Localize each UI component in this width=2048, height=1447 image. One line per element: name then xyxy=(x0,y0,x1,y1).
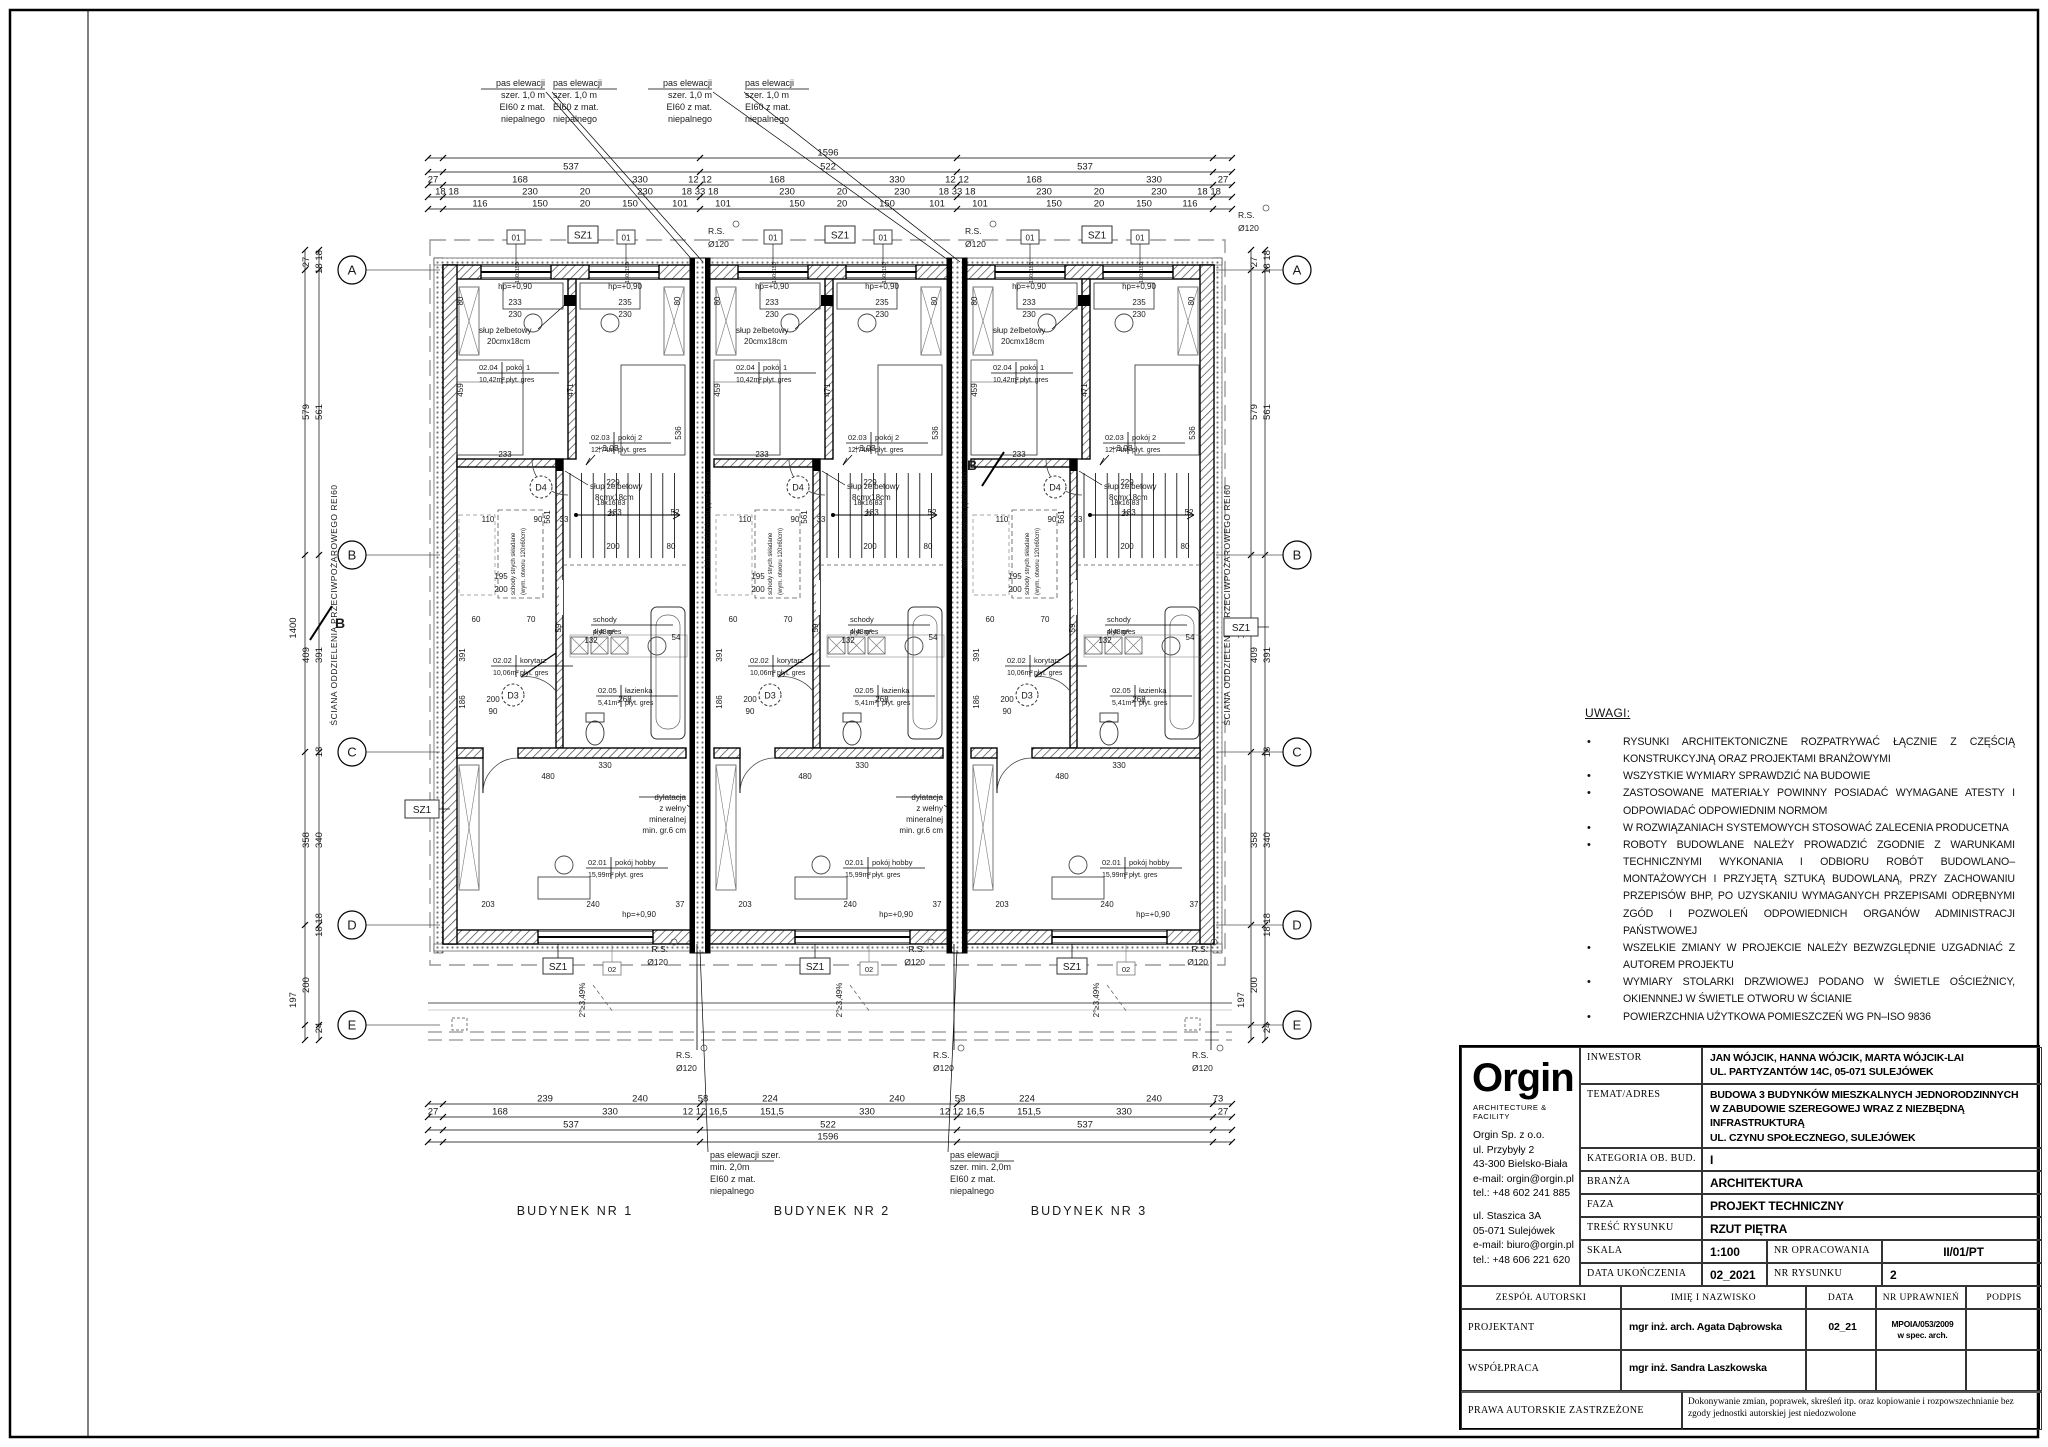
dylatacja-note: min. gr.6 cm xyxy=(899,826,943,835)
room-finish: płyt. gres xyxy=(872,872,901,879)
stair-riser-note: 18x16,83 xyxy=(1111,500,1140,507)
podpis-header: PODPIS xyxy=(1966,1286,2042,1309)
grid-letter: E xyxy=(1293,1018,1302,1033)
column-label: 20cmx18cm xyxy=(487,337,530,346)
company-address-1: Orgin Sp. z o.o. ul. Przybyły 2 43-300 B… xyxy=(1462,1121,1579,1202)
rainpipe-tag: R.S. xyxy=(651,944,668,954)
dylatacja-note: mineralnej xyxy=(649,815,686,824)
fire-wall-note: ŚCIANA ODDZIELENIA PRZECIWPOŻAROWEGO REI… xyxy=(328,484,339,725)
fire-strip-note: niepalnego xyxy=(501,114,545,124)
wspolpraca-name: mgr inż. Sandra Laszkowska xyxy=(1621,1350,1806,1391)
dim-text: 200 xyxy=(301,977,312,993)
room-number: 02.05 xyxy=(598,686,617,695)
dim-text: 168 xyxy=(1026,175,1042,186)
attic-stair-note: schody strych składane xyxy=(768,532,774,595)
dim-text: 195 xyxy=(751,572,765,581)
room-area: 5,41m² xyxy=(1112,700,1134,707)
dim-text: 37 xyxy=(1190,900,1199,909)
dim-text: 101 xyxy=(972,199,988,210)
title-block: OrginARCHITECTURE & FACILITYOrgin Sp. z … xyxy=(1459,1045,2040,1430)
fire-wall-note: ściana oddzielenia ppoż REI60 xyxy=(705,472,712,568)
dim-text: 240 xyxy=(889,1094,905,1105)
fire-strip-note: niepalnego xyxy=(553,114,597,124)
data-ukonczenia-value: 02_2021 xyxy=(1702,1263,1767,1286)
dim-text: 1596 xyxy=(817,148,838,159)
column-label: 20cmx18cm xyxy=(1001,337,1044,346)
room-finish: płyt. gres xyxy=(520,670,549,677)
dim-text: 200 xyxy=(863,542,877,551)
dim-text: 200 xyxy=(751,585,765,594)
room-name: schody xyxy=(850,615,874,624)
note-item: W ROZWIĄZANIACH SYSTEMOWYCH STOSOWAĆ ZAL… xyxy=(1585,820,2015,837)
rainpipe-tag: R.S. xyxy=(1191,944,1208,954)
door-tag: D4 xyxy=(792,483,804,493)
dim-text: 203 xyxy=(995,900,1009,909)
room-number: 02.02 xyxy=(1007,656,1026,665)
dim-text: 110 xyxy=(482,515,495,524)
door-tag: D4 xyxy=(535,483,547,493)
dim-text: 54 xyxy=(672,633,681,642)
data-ukonczenia-label: DATA UKOŃCZENIA xyxy=(1580,1263,1702,1286)
room-finish: płyt. gres xyxy=(763,377,792,384)
room-area: 10,42m² xyxy=(479,377,505,384)
room-finish: płyt. gres xyxy=(615,872,644,879)
dim-text: 230 xyxy=(779,187,795,198)
dim-text: 110 xyxy=(996,515,1009,524)
grid-letter: E xyxy=(348,1018,357,1033)
dim-text: 230 xyxy=(1036,187,1052,198)
section-marker: B xyxy=(335,615,345,631)
dim-text: 18 18 xyxy=(1197,187,1221,198)
dim-text: 391 xyxy=(972,648,981,662)
skala-value: 1:100 xyxy=(1702,1240,1767,1263)
dim-text: 18 33 18 xyxy=(682,187,719,198)
dim-text: 480 xyxy=(1055,772,1069,781)
dim-text: 151,5 xyxy=(760,1107,784,1118)
dim-text: 150 xyxy=(1136,199,1152,210)
level-mark: +3,03 xyxy=(854,443,876,453)
dim-text: 340 xyxy=(1262,832,1273,848)
dim-text: 90 xyxy=(791,515,800,524)
dim-text: 18 33 18 xyxy=(939,187,976,198)
dim-text: 561 xyxy=(314,404,325,420)
dim-text: 522 xyxy=(820,162,836,173)
inwestor-value: JAN WÓJCIK, HANNA WÓJCIK, MARTA WÓJCIK-L… xyxy=(1702,1047,2042,1084)
dim-text: 561 xyxy=(543,510,552,524)
fire-wall-note: ŚCIANA ODDZIELENIA PRZECIWPOŻAROWEGO REI… xyxy=(1221,484,1232,725)
dim-text: 70 xyxy=(1041,615,1050,624)
wall xyxy=(457,459,556,467)
rainpipe-tag: Ø120 xyxy=(1192,1063,1213,1073)
dim-text: 80 xyxy=(667,542,676,551)
faza-value: PROJEKT TECHNICZNY xyxy=(1702,1194,2042,1217)
dim-text: 233 xyxy=(765,298,779,307)
attic-stair-note: schody strych składane xyxy=(1025,532,1031,595)
dim-text: 537 xyxy=(1077,162,1093,173)
window-size: 150x150 xyxy=(882,262,888,283)
dim-text: 168 xyxy=(512,175,528,186)
dim-text: 240 xyxy=(1100,900,1114,909)
dim-text: 200 xyxy=(1000,695,1014,704)
dim-text: 90 xyxy=(489,707,498,716)
dim-text: 579 xyxy=(301,404,312,420)
fire-strip-note: pas elewacji xyxy=(745,78,794,88)
nr-rysunku-label: NR RYSUNKU xyxy=(1767,1263,1882,1286)
rainpipe-tag: Ø120 xyxy=(965,239,986,249)
fire-strip-note: EI60 z mat. xyxy=(950,1174,996,1184)
projektant-uprawnienia: MPOIA/053/2009 w spec. arch. xyxy=(1876,1309,1966,1350)
dim-text: 536 xyxy=(674,426,683,440)
dim-text: 54 xyxy=(1186,633,1195,642)
dim-text: 101 xyxy=(929,199,945,210)
dim-text: 52 xyxy=(928,508,937,517)
fire-strip-note: szer. min. 2,0m xyxy=(950,1162,1011,1172)
window-tag: 02 xyxy=(608,965,616,974)
grid-letter: C xyxy=(1292,745,1301,760)
room-name: pokój 2 xyxy=(1132,433,1156,442)
room-area: 15,99m² xyxy=(588,872,614,879)
dim-text: 203 xyxy=(481,900,495,909)
dim-text: 203 xyxy=(738,900,752,909)
wall xyxy=(714,459,813,467)
dim-text: 409 xyxy=(1249,647,1260,663)
dim-text: 151,5 xyxy=(1017,1107,1041,1118)
rainpipe-tag: R.S. xyxy=(708,226,725,236)
dim-text: 24 xyxy=(1262,1023,1273,1034)
dim-text: 80 xyxy=(930,296,939,305)
wall xyxy=(443,265,457,944)
dim-text: 80 xyxy=(673,296,682,305)
dim-text: 561 xyxy=(1057,510,1066,524)
fire-strip-note: pas elewacji szer. xyxy=(710,1150,781,1160)
rainpipe-tag: R.S. xyxy=(1238,210,1255,220)
dim-text: 230 xyxy=(522,187,538,198)
dim-text: 132 xyxy=(841,636,855,645)
door-tag: D3 xyxy=(507,691,519,701)
dim-text: 391 xyxy=(715,648,724,662)
room-name: pokój hobby xyxy=(615,858,656,867)
room-name: korytarz xyxy=(1034,656,1061,665)
imie-header: IMIĘ I NAZWISKO xyxy=(1621,1286,1806,1309)
wall xyxy=(1032,748,1200,758)
room-finish: płyt. gres xyxy=(1129,872,1158,879)
dim-text: 224 xyxy=(762,1094,778,1105)
prawa-label: PRAWA AUTORSKIE ZASTRZEŻONE xyxy=(1461,1391,1682,1430)
dim-text: 132 xyxy=(1098,636,1112,645)
room-finish: płyt. gres xyxy=(618,447,647,454)
dim-text: 150 xyxy=(532,199,548,210)
dim-text: 195 xyxy=(1008,572,1022,581)
note-item: RYSUNKI ARCHITEKTONICZNE ROZPATRYWAĆ ŁĄC… xyxy=(1585,734,2015,768)
dim-text: 233 xyxy=(755,450,769,459)
dim-text: 59 xyxy=(554,623,563,632)
room-area: 15,99m² xyxy=(1102,872,1128,879)
dim-text: 240 xyxy=(586,900,600,909)
wspolpraca-data xyxy=(1806,1350,1876,1391)
dim-text: 230 xyxy=(508,310,522,319)
room-finish: płyt. gres xyxy=(1020,377,1049,384)
attic-stair-note: (wym. otworu 120x60cm) xyxy=(521,528,527,595)
room-area: 10,06m² xyxy=(1007,670,1033,677)
nr-opracowania-label: NR OPRACOWANIA xyxy=(1767,1240,1882,1263)
projektant-label: PROJEKTANT xyxy=(1461,1309,1621,1350)
dim-text: 330 xyxy=(1116,1107,1132,1118)
attic-stair-note: (wym. otworu 120x60cm) xyxy=(778,528,784,595)
zespol-header: ZESPÓŁ AUTORSKI xyxy=(1461,1286,1621,1309)
dim-text: 20 xyxy=(837,187,848,198)
dim-text: 200 xyxy=(743,695,757,704)
dim-text: 230 xyxy=(637,187,653,198)
dim-text: 340 xyxy=(314,832,325,848)
fire-strip-note: min. 2,0m xyxy=(710,1162,750,1172)
dim-text: 33 xyxy=(560,515,569,524)
dim-text: 197 xyxy=(1236,992,1247,1008)
fire-strip-note: EI60 z mat. xyxy=(499,102,545,112)
dim-text: 12 12 xyxy=(688,175,712,186)
dim-text: 60 xyxy=(729,615,738,624)
building-caption: BUDYNEK NR 2 xyxy=(774,1204,890,1218)
slope-note: 2°≥3,49% xyxy=(578,983,587,1018)
dim-text: 330 xyxy=(1146,175,1162,186)
room-name: pokój 2 xyxy=(875,433,899,442)
room-number: 02.02 xyxy=(750,656,769,665)
inwestor-label: INWESTOR xyxy=(1580,1047,1702,1084)
dim-text: 20 xyxy=(580,199,591,210)
dim-text: 537 xyxy=(563,1120,579,1131)
dim-text: 20 xyxy=(1094,187,1105,198)
kategoria-label: KATEGORIA OB. BUD. xyxy=(1580,1148,1702,1171)
fire-strip-note: szer. 1,0 m xyxy=(501,90,545,100)
dim-text: 330 xyxy=(632,175,648,186)
dim-text: 37 xyxy=(933,900,942,909)
room-name: korytarz xyxy=(520,656,547,665)
fire-strip-note: pas elewacji xyxy=(950,1150,999,1160)
section-marker: B xyxy=(967,457,977,473)
dim-text: 459 xyxy=(456,383,465,397)
column-label: 20cmx18cm xyxy=(744,337,787,346)
fire-strip-note: EI60 z mat. xyxy=(553,102,599,112)
building-caption: BUDYNEK NR 1 xyxy=(517,1204,633,1218)
note-item: ROBOTY BUDOWLANE NALEŻY PROWADZIĆ ZGODNI… xyxy=(1585,837,2015,940)
dim-text: 186 xyxy=(972,695,981,709)
room-name: pokój 1 xyxy=(506,363,530,372)
nr-uprawnien-header: NR UPRAWNIEŃ xyxy=(1876,1286,1966,1309)
rainpipe-tag: Ø120 xyxy=(647,957,668,967)
room-finish: płyt. gres xyxy=(593,629,622,636)
door-tag: D4 xyxy=(1049,483,1061,493)
dim-text: 60 xyxy=(472,615,481,624)
dim-text: 230 xyxy=(1132,310,1146,319)
dim-text: 27 xyxy=(301,257,312,268)
dim-text: 52 xyxy=(671,508,680,517)
company-address-2: ul. Staszica 3A 05-071 Sulejówek e-mail:… xyxy=(1462,1202,1579,1268)
window-tag: 02 xyxy=(1122,965,1130,974)
column-label: słup żelbetowy xyxy=(993,326,1045,335)
fire-strip-note: pas elewacji xyxy=(496,78,545,88)
room-finish: płyt. gres xyxy=(1034,670,1063,677)
room-area: 10,06m² xyxy=(493,670,519,677)
dim-text: 80 xyxy=(713,296,722,305)
shaft-tag: SZ1 xyxy=(806,962,825,973)
faza-label: FAZA xyxy=(1580,1194,1702,1217)
dim-text: 330 xyxy=(889,175,905,186)
dim-text: 233 xyxy=(1012,450,1026,459)
dylatacja-note: dylatacja xyxy=(911,793,943,802)
dim-text: 37 xyxy=(676,900,685,909)
dim-text: 330 xyxy=(859,1107,875,1118)
shaft-tag: SZ1 xyxy=(831,231,850,242)
room-name: schody xyxy=(593,615,617,624)
dim-text: 60 xyxy=(986,615,995,624)
grid-letter: B xyxy=(1293,548,1302,563)
attic-stair-note: schody strych składane xyxy=(511,532,517,595)
dim-text: 235 xyxy=(618,298,632,307)
dim-text: 27 xyxy=(428,175,439,186)
window-tag: 01 xyxy=(512,234,521,243)
dim-text: 59 xyxy=(1068,623,1077,632)
dylatacja-note: z wełny xyxy=(916,804,943,813)
dim-text: 459 xyxy=(713,383,722,397)
dim-text: 70 xyxy=(527,615,536,624)
rainpipe-tag: Ø120 xyxy=(708,239,729,249)
shaft-tag: SZ1 xyxy=(549,962,568,973)
dim-text: 110 xyxy=(739,515,752,524)
dim-text: 90 xyxy=(1003,707,1012,716)
room-finish: płyt. gres xyxy=(777,670,806,677)
note-item: WSZYSTKIE WYMIARY SPRAWDZIĆ NA BUDOWIE xyxy=(1585,768,2015,785)
dim-text: 52 xyxy=(1185,508,1194,517)
dim-text: 54 xyxy=(929,633,938,642)
dim-text: 186 xyxy=(458,695,467,709)
dim-text: 90 xyxy=(534,515,543,524)
room-name: pokój hobby xyxy=(872,858,913,867)
dim-text: 150 xyxy=(622,199,638,210)
dim-text: 330 xyxy=(855,761,869,770)
room-number: 02.03 xyxy=(848,433,867,442)
dim-text: 579 xyxy=(1249,404,1260,420)
dim-text: 80 xyxy=(924,542,933,551)
column-label: słup żelbetowy xyxy=(736,326,788,335)
dim-text: 330 xyxy=(1112,761,1126,770)
dim-text: 195 xyxy=(494,572,508,581)
room-number: 02.01 xyxy=(845,858,864,867)
dim-text: 200 xyxy=(494,585,508,594)
window-tag: 01 xyxy=(1136,234,1145,243)
level-mark: +3,03 xyxy=(1111,443,1133,453)
room-number: 02.05 xyxy=(1112,686,1131,695)
room-number: 02.04 xyxy=(993,363,1012,372)
dim-text: 24 xyxy=(314,1023,325,1034)
wall xyxy=(518,748,686,758)
dim-text: 536 xyxy=(931,426,940,440)
note-item: WSZELKIE ZMIANY W PROJEKCIE NALEŻY BEZWZ… xyxy=(1585,940,2015,974)
dim-text: 1400 xyxy=(288,617,299,638)
dim-text: 18 18 xyxy=(314,913,325,937)
dim-text: 200 xyxy=(1249,977,1260,993)
dim-text: 561 xyxy=(1262,404,1273,420)
wall xyxy=(775,748,943,758)
room-name: łazienka xyxy=(625,686,653,695)
drawing-sheet: D4D3schody strych składane(wym. otworu 1… xyxy=(0,0,2048,1447)
dim-text: 80 xyxy=(970,296,979,305)
level-mark: hp=+0,90 xyxy=(879,910,913,919)
dim-text: 229 xyxy=(1120,478,1134,487)
company-logo: Orgin xyxy=(1462,1048,1579,1101)
dim-text: 522 xyxy=(820,1120,836,1131)
dim-text: 537 xyxy=(563,162,579,173)
shaft-tag: SZ1 xyxy=(413,805,432,816)
fire-strip-note: pas elewacji xyxy=(553,78,602,88)
dim-text: 18 xyxy=(314,747,325,758)
dim-text: 235 xyxy=(1132,298,1146,307)
slope-note: 2°≥3,49% xyxy=(835,983,844,1018)
dim-text: 18 18 xyxy=(314,250,325,274)
nr-rysunku-value: 2 xyxy=(1882,1263,2042,1286)
dim-text: 409 xyxy=(301,647,312,663)
dim-text: 240 xyxy=(1146,1094,1162,1105)
dim-text: 18 18 xyxy=(435,187,459,198)
wall xyxy=(714,748,740,758)
logo-subtitle: ARCHITECTURE & FACILITY xyxy=(1462,1101,1579,1121)
room-number: 02.04 xyxy=(736,363,755,372)
wspolpraca-uprawnienia xyxy=(1876,1350,1966,1391)
rainpipe-tag: R.S. xyxy=(1192,1050,1209,1060)
rainpipe-tag: Ø120 xyxy=(904,957,925,967)
dim-text: 358 xyxy=(1249,832,1260,848)
room-name: pokój 1 xyxy=(1020,363,1044,372)
note-item: ZASTOSOWANE MATERIAŁY POWINNY POSIADAĆ W… xyxy=(1585,785,2015,819)
dim-text: 229 xyxy=(863,478,877,487)
window-tag: 02 xyxy=(865,965,873,974)
fire-strip-note: pas elewacji xyxy=(663,78,712,88)
dim-text: 80 xyxy=(1187,296,1196,305)
dim-text: 12 12 16,5 xyxy=(683,1107,728,1118)
window-tag: 01 xyxy=(879,234,888,243)
fire-strip-note: niepalnego xyxy=(710,1186,754,1196)
dim-text: 168 xyxy=(492,1107,508,1118)
dim-text: 268 xyxy=(1132,695,1146,704)
dim-text: 33 xyxy=(1074,515,1083,524)
dim-text: 330 xyxy=(602,1107,618,1118)
dim-text: 90 xyxy=(746,707,755,716)
dim-text: 480 xyxy=(798,772,812,781)
dim-text: 471 xyxy=(823,383,832,397)
room-name: korytarz xyxy=(777,656,804,665)
dim-text: 200 xyxy=(1008,585,1022,594)
grid-letter: C xyxy=(347,745,356,760)
dim-text: 183 xyxy=(865,508,879,517)
room-area: 10,42m² xyxy=(736,377,762,384)
dim-text: 230 xyxy=(765,310,779,319)
room-name: schody xyxy=(1107,615,1131,624)
dim-text: 12 12 16,5 xyxy=(940,1107,985,1118)
dim-text: 90 xyxy=(1048,515,1057,524)
dim-text: 27 xyxy=(1218,175,1229,186)
tresc-value: RZUT PIĘTRA xyxy=(1702,1217,2042,1240)
dim-text: 58 xyxy=(955,1094,966,1105)
dim-text: 27 xyxy=(1249,257,1260,268)
grid-letter: A xyxy=(348,263,357,278)
dim-text: 391 xyxy=(1262,647,1273,663)
dim-text: 230 xyxy=(875,310,889,319)
dim-text: 183 xyxy=(608,508,622,517)
shaft-tag: SZ1 xyxy=(1063,962,1082,973)
dim-text: 150 xyxy=(789,199,805,210)
room-name: pokój hobby xyxy=(1129,858,1170,867)
nr-opracowania-value: II/01/PT xyxy=(1882,1240,2042,1263)
notes-list: RYSUNKI ARCHITEKTONICZNE ROZPATRYWAĆ ŁĄC… xyxy=(1585,734,2015,1026)
dim-text: 391 xyxy=(314,647,325,663)
